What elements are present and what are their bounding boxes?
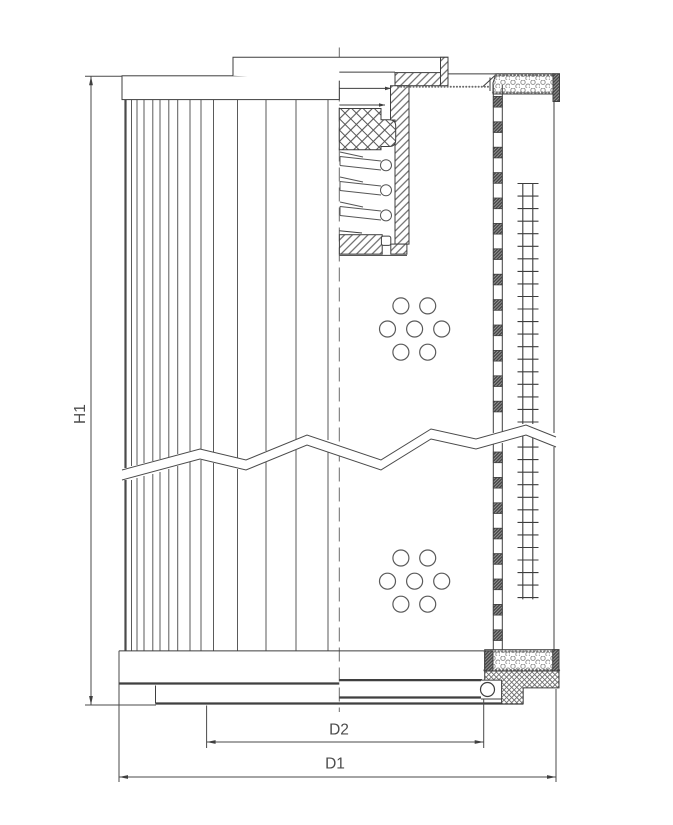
svg-text:D2: D2: [329, 722, 349, 739]
svg-text:H1: H1: [72, 404, 89, 424]
svg-text:D1: D1: [325, 756, 345, 773]
